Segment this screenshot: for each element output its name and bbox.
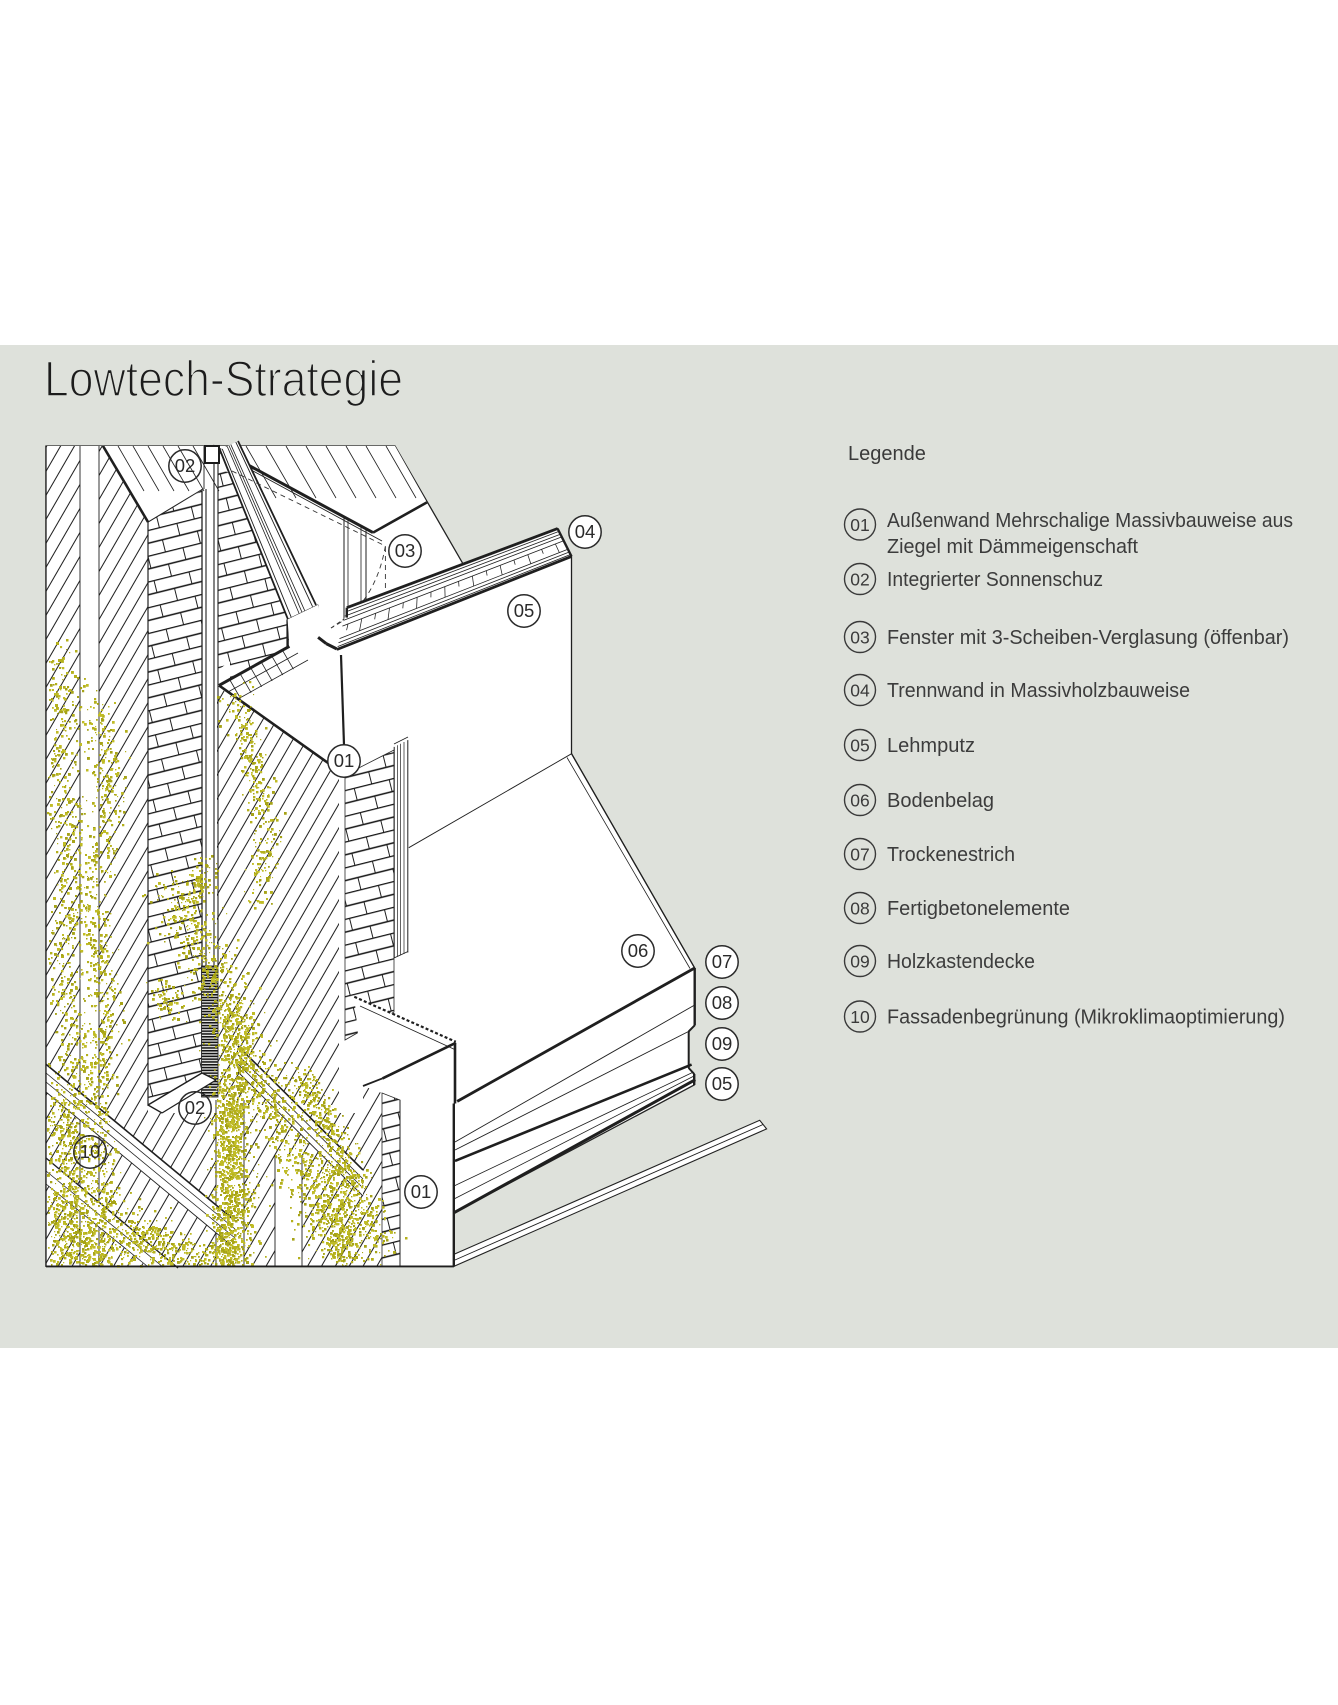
svg-text:Lowtech-Strategie: Lowtech-Strategie — [44, 351, 403, 407]
svg-text:Integrierter Sonnenschuz: Integrierter Sonnenschuz — [887, 569, 1103, 591]
svg-text:01: 01 — [334, 750, 355, 771]
svg-text:Lehmputz: Lehmputz — [887, 735, 975, 757]
svg-text:05: 05 — [850, 736, 869, 756]
svg-text:05: 05 — [712, 1073, 733, 1094]
svg-text:05: 05 — [514, 600, 535, 621]
svg-text:04: 04 — [575, 521, 596, 542]
svg-text:Legende: Legende — [848, 443, 926, 465]
svg-text:07: 07 — [850, 845, 869, 865]
svg-text:Ziegel mit Dämmeigenschaft: Ziegel mit Dämmeigenschaft — [887, 536, 1138, 558]
svg-text:Bodenbelag: Bodenbelag — [887, 790, 994, 812]
svg-text:Trennwand in Massivholzbauweis: Trennwand in Massivholzbauweise — [887, 680, 1190, 702]
svg-text:03: 03 — [395, 540, 416, 561]
svg-text:10: 10 — [80, 1141, 101, 1162]
svg-text:Fenster mit 3-Scheiben-Verglas: Fenster mit 3-Scheiben-Verglasung (öffen… — [887, 627, 1289, 649]
svg-text:01: 01 — [850, 515, 869, 535]
svg-text:01: 01 — [411, 1181, 432, 1202]
svg-text:Holzkastendecke: Holzkastendecke — [887, 951, 1035, 973]
svg-text:02: 02 — [185, 1097, 206, 1118]
svg-text:06: 06 — [628, 940, 649, 961]
svg-text:08: 08 — [850, 899, 869, 919]
svg-text:10: 10 — [850, 1007, 870, 1027]
svg-text:Trockenestrich: Trockenestrich — [887, 844, 1015, 866]
svg-text:02: 02 — [175, 455, 196, 476]
svg-text:Außenwand Mehrschalige Massivb: Außenwand Mehrschalige Massivbauweise au… — [887, 510, 1293, 532]
svg-text:04: 04 — [850, 681, 870, 701]
svg-text:03: 03 — [850, 628, 869, 648]
svg-text:09: 09 — [850, 952, 869, 972]
svg-text:Fassadenbegrünung (Mikroklimao: Fassadenbegrünung (Mikroklimaoptimierung… — [887, 1007, 1285, 1029]
svg-text:06: 06 — [850, 791, 869, 811]
svg-text:08: 08 — [712, 992, 733, 1013]
svg-text:02: 02 — [850, 570, 869, 590]
svg-text:Fertigbetonelemente: Fertigbetonelemente — [887, 898, 1070, 920]
svg-text:07: 07 — [712, 951, 733, 972]
svg-text:09: 09 — [712, 1033, 733, 1054]
